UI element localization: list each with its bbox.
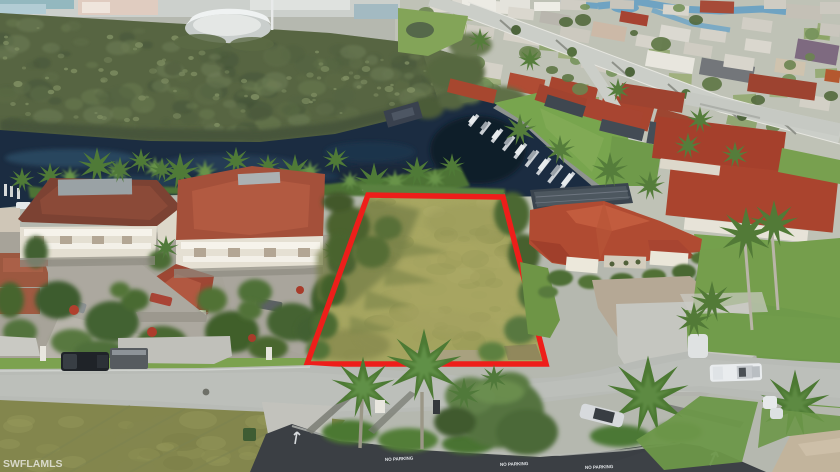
svg-text:SWFLAMLS: SWFLAMLS xyxy=(3,458,63,470)
svg-text:NO PARKING: NO PARKING xyxy=(500,461,529,467)
svg-text:NO PARKING: NO PARKING xyxy=(585,464,614,470)
